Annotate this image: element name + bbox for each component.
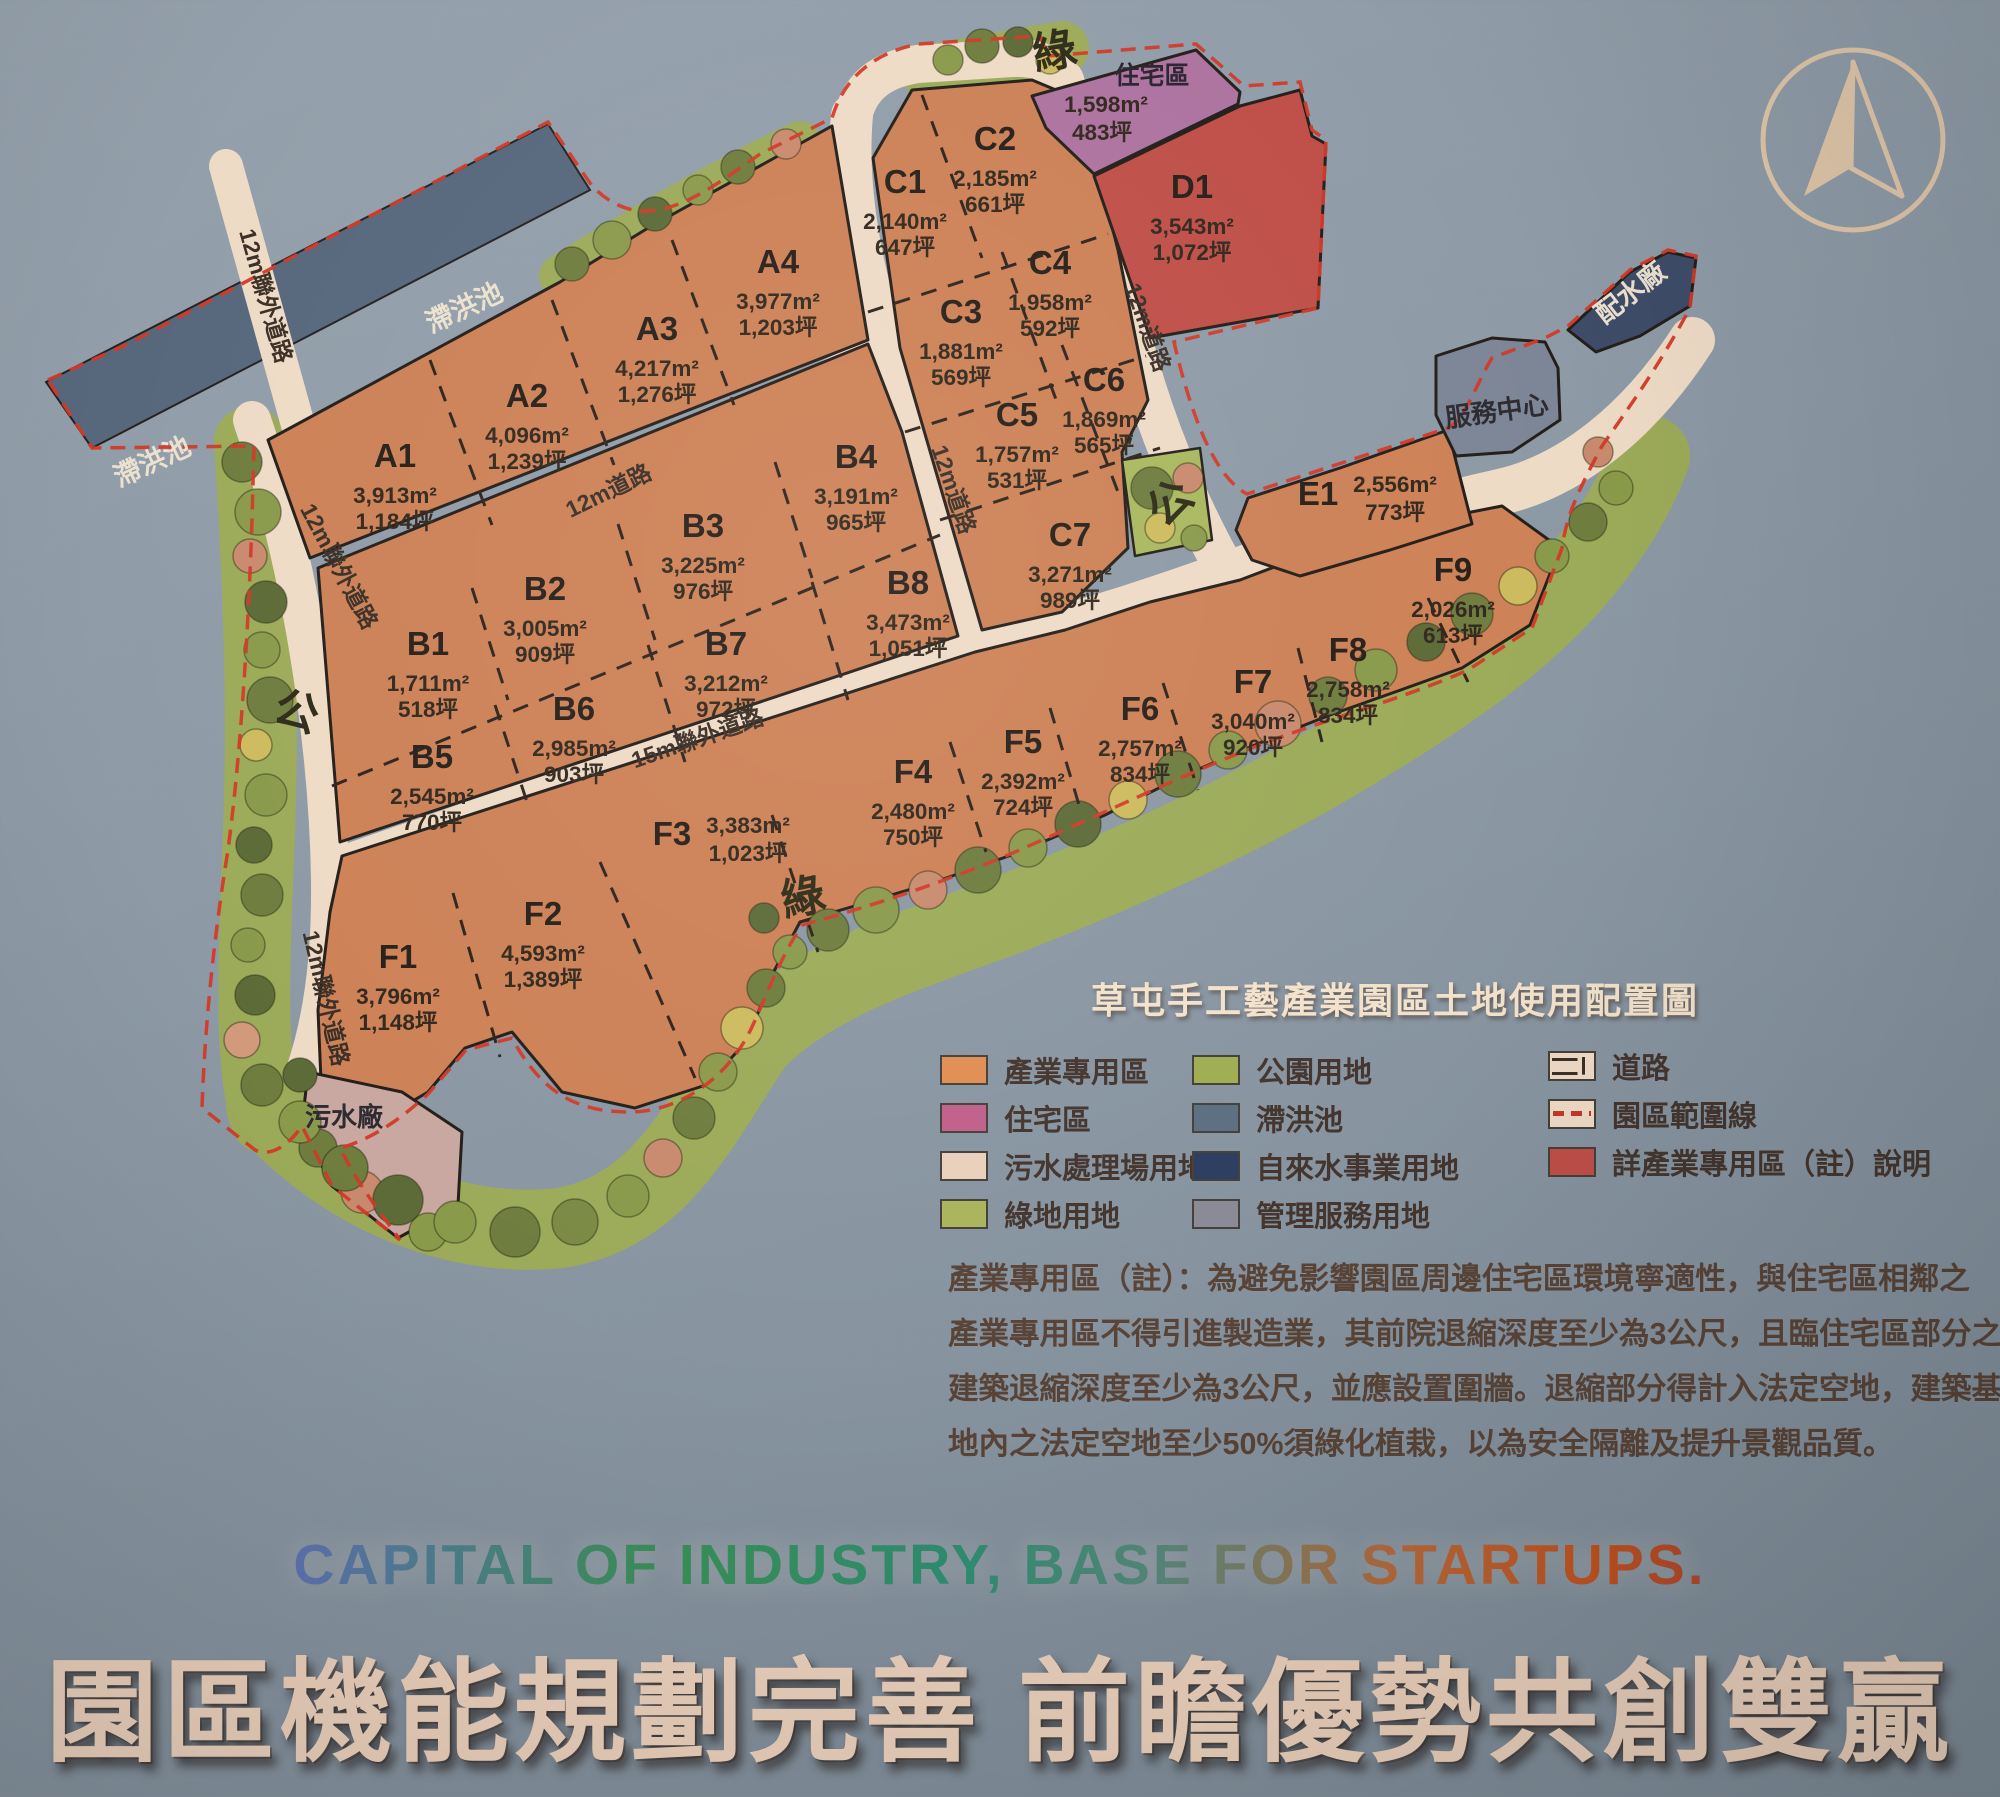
parcel-area-ping-E1: 773坪 bbox=[1365, 500, 1426, 525]
tree-icon bbox=[965, 29, 999, 63]
parcel-label-F3: F3 bbox=[653, 815, 692, 852]
parcel-area-ping-C2: 661坪 bbox=[965, 192, 1026, 217]
tree-icon bbox=[373, 1175, 423, 1225]
parcel-area-m2-F7: 3,040m² bbox=[1211, 709, 1295, 734]
legend-label: 產業專用區 bbox=[1004, 1049, 1149, 1091]
tree-icon bbox=[434, 1201, 476, 1243]
legend-swatch-dashed bbox=[1548, 1099, 1596, 1129]
parcel-area-m2-F3: 3,383m² bbox=[706, 813, 790, 838]
tagline-english: CAPITAL OF INDUSTRY, BASE FOR STARTUPS. bbox=[0, 1532, 2000, 1598]
parcel-area-m2-C1: 2,140m² bbox=[863, 209, 947, 234]
legend-swatch-solid bbox=[940, 1151, 988, 1181]
parcel-area-ping-B1: 518坪 bbox=[398, 697, 459, 722]
tree-icon bbox=[638, 197, 672, 231]
parcel-area-m2-B3: 3,225m² bbox=[661, 553, 745, 578]
area-label-4: 污水廠 bbox=[305, 1102, 384, 1132]
legend-swatch-solid bbox=[940, 1055, 988, 1085]
parcel-area-m2-D1: 3,543m² bbox=[1150, 214, 1234, 239]
parcel-label-F5: F5 bbox=[1004, 723, 1043, 760]
tree-icon bbox=[235, 975, 275, 1015]
parcel-label-F9: F9 bbox=[1434, 551, 1473, 588]
legend-title: 草屯手工藝產業園區土地使用配置圖 bbox=[1090, 972, 1700, 1024]
note-line: 產業專用區（註）：為避免影響園區周邊住宅區環境寧適性，與住宅區相鄰之 bbox=[948, 1252, 1963, 1307]
legend-item: 管理服務用地 bbox=[1192, 1198, 1459, 1229]
legend-swatch-solid bbox=[1548, 1147, 1596, 1177]
parcel-area-m2-B5: 2,545m² bbox=[390, 784, 474, 809]
tree-icon bbox=[555, 247, 589, 281]
parcel-area-ping-住宅區: 483坪 bbox=[1072, 120, 1133, 145]
tree-icon bbox=[224, 1022, 260, 1058]
legend-label: 綠地用地 bbox=[1004, 1193, 1120, 1235]
area-label-7: 綠 bbox=[1029, 24, 1081, 80]
parcel-area-ping-B3: 976坪 bbox=[673, 579, 734, 604]
legend-swatch-solid bbox=[1192, 1151, 1240, 1181]
parcel-label-A4: A4 bbox=[757, 243, 800, 280]
parcel-label-C2: C2 bbox=[974, 120, 1016, 157]
land-use-map: A13,913m²1,184坪A24,096m²1,239坪A34,217m²1… bbox=[0, 0, 2000, 1797]
industrial-zone-note: 產業專用區（註）：為避免影響園區周邊住宅區環境寧適性，與住宅區相鄰之 產業專用區… bbox=[948, 1252, 1963, 1472]
parcel-area-m2-C2: 2,185m² bbox=[953, 166, 1037, 191]
legend-label: 住宅區 bbox=[1004, 1097, 1091, 1139]
parcel-label-C7: C7 bbox=[1049, 516, 1091, 553]
tree-icon bbox=[222, 442, 262, 482]
parcel-label-C1: C1 bbox=[884, 163, 926, 200]
tree-icon bbox=[607, 1175, 649, 1217]
legend-swatch-solid bbox=[940, 1199, 988, 1229]
legend-label: 道路 bbox=[1612, 1045, 1670, 1087]
area-label-1: 滯洪池 bbox=[109, 431, 195, 492]
tree-icon bbox=[955, 847, 1001, 893]
tree-icon bbox=[552, 1199, 598, 1245]
legend-item: 污水處理場用地 bbox=[940, 1150, 1207, 1181]
slogan-chinese: 園區機能規劃完善 前瞻優勢共創雙贏 bbox=[0, 1622, 2000, 1784]
legend-label: 園區範圍線 bbox=[1612, 1093, 1757, 1135]
legend-label: 管理服務用地 bbox=[1256, 1193, 1430, 1235]
tree-icon bbox=[490, 1207, 540, 1257]
tree-icon bbox=[241, 1064, 283, 1106]
parcel-area-m2-F4: 2,480m² bbox=[871, 799, 955, 824]
tree-icon bbox=[231, 928, 265, 962]
parcel-label-B7: B7 bbox=[705, 625, 747, 662]
tree-icon bbox=[240, 729, 272, 761]
parcel-area-m2-C4: 1,958m² bbox=[1008, 290, 1092, 315]
tree-icon bbox=[235, 489, 281, 535]
parcel-area-ping-F2: 1,389坪 bbox=[504, 967, 583, 992]
tree-icon bbox=[283, 1058, 317, 1092]
parcel-area-m2-C5: 1,757m² bbox=[975, 442, 1059, 467]
parcel-label-B3: B3 bbox=[682, 507, 724, 544]
parcel-area-ping-C6: 565坪 bbox=[1074, 433, 1135, 458]
parcel-area-m2-C7: 3,271m² bbox=[1028, 562, 1112, 587]
parcel-area-ping-F3: 1,023坪 bbox=[709, 841, 788, 866]
tree-icon bbox=[747, 969, 785, 1007]
parcel-label-B8: B8 bbox=[887, 564, 929, 601]
tree-icon bbox=[236, 827, 272, 863]
parcel-label-F1: F1 bbox=[379, 938, 418, 975]
tree-icon bbox=[1599, 471, 1633, 505]
parcel-area-m2-B4: 3,191m² bbox=[814, 484, 898, 509]
parcel-label-B1: B1 bbox=[407, 625, 449, 662]
legend-label: 公園用地 bbox=[1256, 1049, 1372, 1091]
tree-icon bbox=[245, 774, 287, 816]
legend-item: 公園用地 bbox=[1192, 1054, 1459, 1085]
parcel-label-B2: B2 bbox=[524, 570, 566, 607]
tree-icon bbox=[749, 903, 779, 933]
parcel-area-m2-A1: 3,913m² bbox=[353, 483, 437, 508]
parcel-area-ping-B4: 965坪 bbox=[826, 510, 887, 535]
parcel-label-B5: B5 bbox=[411, 738, 453, 775]
legend-item: 綠地用地 bbox=[940, 1198, 1207, 1229]
parcel-area-m2-C3: 1,881m² bbox=[919, 339, 1003, 364]
parcel-label-F7: F7 bbox=[1234, 663, 1273, 700]
parcel-area-ping-B5: 770坪 bbox=[402, 810, 463, 835]
legend-label: 自來水事業用地 bbox=[1256, 1145, 1459, 1187]
parcel-area-m2-A3: 4,217m² bbox=[615, 356, 699, 381]
parcel-area-ping-F4: 750坪 bbox=[883, 825, 944, 850]
parcel-label-E1: E1 bbox=[1298, 475, 1338, 512]
legend-swatch-road bbox=[1548, 1051, 1596, 1081]
parcel-area-ping-C5: 531坪 bbox=[987, 468, 1048, 493]
parcel-label-A2: A2 bbox=[506, 377, 548, 414]
legend-column-3: 道路園區範圍線詳產業專用區（註）說明 bbox=[1548, 1050, 1931, 1177]
parcel-area-m2-B1: 1,711m² bbox=[387, 671, 470, 696]
legend-column-2: 公園用地滯洪池自來水事業用地管理服務用地 bbox=[1192, 1054, 1459, 1229]
tree-icon bbox=[933, 45, 963, 75]
parcel-area-ping-F1: 1,148坪 bbox=[359, 1010, 438, 1035]
parcel-area-ping-A4: 1,203坪 bbox=[739, 315, 818, 340]
legend-item: 自來水事業用地 bbox=[1192, 1150, 1459, 1181]
parcel-area-m2-F2: 4,593m² bbox=[501, 941, 585, 966]
parcel-area-m2-A4: 3,977m² bbox=[736, 289, 820, 314]
parcel-label-B4: B4 bbox=[835, 438, 878, 475]
legend-item: 詳產業專用區（註）說明 bbox=[1548, 1146, 1931, 1177]
parcel-label-A3: A3 bbox=[636, 310, 678, 347]
tree-icon bbox=[1499, 567, 1537, 605]
legend-swatch-solid bbox=[1192, 1103, 1240, 1133]
tree-icon bbox=[1569, 503, 1607, 541]
legend-label: 詳產業專用區（註）說明 bbox=[1612, 1141, 1931, 1183]
legend-column-1: 產業專用區住宅區污水處理場用地綠地用地 bbox=[940, 1054, 1207, 1229]
legend-item: 產業專用區 bbox=[940, 1054, 1207, 1085]
legend-swatch-solid bbox=[940, 1103, 988, 1133]
parcel-area-ping-F8: 834坪 bbox=[1318, 703, 1379, 728]
parcel-label-住宅區: 住宅區 bbox=[1114, 61, 1189, 90]
parcel-area-ping-A1: 1,184坪 bbox=[356, 509, 435, 534]
parcel-area-m2-A2: 4,096m² bbox=[485, 423, 569, 448]
parcel-area-m2-B6: 2,985m² bbox=[532, 736, 616, 761]
parcel-area-m2-F5: 2,392m² bbox=[981, 769, 1065, 794]
tree-icon bbox=[773, 935, 807, 969]
parcel-area-ping-C7: 989坪 bbox=[1040, 588, 1101, 613]
parcel-area-ping-A2: 1,239坪 bbox=[488, 449, 567, 474]
parcel-area-ping-F5: 724坪 bbox=[993, 795, 1054, 820]
parcel-area-m2-F9: 2,026m² bbox=[1411, 597, 1495, 622]
legend-item: 道路 bbox=[1548, 1050, 1931, 1081]
parcel-area-m2-B8: 3,473m² bbox=[866, 610, 950, 635]
parcel-label-F8: F8 bbox=[1329, 631, 1368, 668]
billboard-photo: A13,913m²1,184坪A24,096m²1,239坪A34,217m²1… bbox=[0, 0, 2000, 1797]
parcel-area-m2-B2: 3,005m² bbox=[503, 616, 587, 641]
tree-icon bbox=[909, 871, 947, 909]
legend-label: 滯洪池 bbox=[1256, 1097, 1343, 1139]
tree-icon bbox=[721, 150, 755, 184]
parcel-area-m2-E1: 2,556m² bbox=[1353, 472, 1437, 497]
note-line: 產業專用區不得引進製造業，其前院退縮深度至少為3公尺，且臨住宅區部分之 bbox=[948, 1307, 1963, 1362]
legend-item: 園區範圍線 bbox=[1548, 1098, 1931, 1129]
parcel-label-A1: A1 bbox=[374, 437, 416, 474]
parcel-area-ping-C1: 647坪 bbox=[875, 235, 936, 260]
legend-label: 污水處理場用地 bbox=[1004, 1145, 1207, 1187]
tree-icon bbox=[593, 221, 631, 259]
parcel-area-m2-F1: 3,796m² bbox=[356, 984, 440, 1009]
parcel-area-ping-A3: 1,276坪 bbox=[618, 382, 697, 407]
parcel-label-F4: F4 bbox=[894, 753, 933, 790]
parcel-area-ping-C3: 569坪 bbox=[931, 365, 992, 390]
parcel-area-ping-D1: 1,072坪 bbox=[1153, 240, 1232, 265]
parcel-label-B6: B6 bbox=[553, 690, 595, 727]
parcel-area-ping-F6: 834坪 bbox=[1110, 762, 1171, 787]
parcel-area-m2-住宅區: 1,598m² bbox=[1064, 92, 1148, 117]
parcel-label-C3: C3 bbox=[940, 293, 982, 330]
tree-icon bbox=[644, 1139, 682, 1177]
parcel-area-m2-F6: 2,757m² bbox=[1098, 736, 1182, 761]
tree-icon bbox=[1535, 539, 1569, 573]
legend-swatch-solid bbox=[1192, 1199, 1240, 1229]
tree-icon bbox=[245, 581, 287, 623]
note-line: 地內之法定空地至少50%須綠化植栽，以為安全隔離及提升景觀品質。 bbox=[948, 1417, 1963, 1472]
parcel-label-C4: C4 bbox=[1029, 244, 1072, 281]
tree-icon bbox=[244, 632, 280, 668]
parcel-label-F6: F6 bbox=[1121, 690, 1160, 727]
tree-icon bbox=[1583, 437, 1613, 467]
parcel-label-F2: F2 bbox=[524, 895, 563, 932]
parcel-label-D1: D1 bbox=[1171, 168, 1213, 205]
parcel-area-ping-B6: 903坪 bbox=[544, 762, 605, 787]
parcel-area-ping-F9: 613坪 bbox=[1423, 623, 1484, 648]
parcel-area-m2-B7: 3,212m² bbox=[684, 671, 768, 696]
parcel-area-m2-F8: 2,758m² bbox=[1306, 677, 1390, 702]
legend-swatch-solid bbox=[1192, 1055, 1240, 1085]
tree-icon bbox=[241, 874, 283, 916]
parcel-label-C6: C6 bbox=[1083, 361, 1125, 398]
note-line: 建築退縮深度至少為3公尺，並應設置圍牆。退縮部分得計入法定空地，建築基 bbox=[948, 1362, 1963, 1417]
parcel-label-C5: C5 bbox=[996, 396, 1038, 433]
legend-item: 住宅區 bbox=[940, 1102, 1207, 1133]
compass-north-icon bbox=[1763, 50, 1943, 230]
parcel-area-m2-C6: 1,869m² bbox=[1062, 407, 1146, 432]
tree-icon bbox=[673, 1097, 715, 1139]
parcel-area-ping-C4: 592坪 bbox=[1020, 316, 1081, 341]
tree-icon bbox=[1181, 525, 1207, 551]
tree-icon bbox=[771, 129, 801, 159]
parcel-area-ping-B8: 1,051坪 bbox=[869, 636, 948, 661]
parcel-area-ping-B2: 909坪 bbox=[515, 642, 576, 667]
legend-item: 滯洪池 bbox=[1192, 1102, 1459, 1133]
parcel-area-ping-F7: 920坪 bbox=[1223, 735, 1284, 760]
